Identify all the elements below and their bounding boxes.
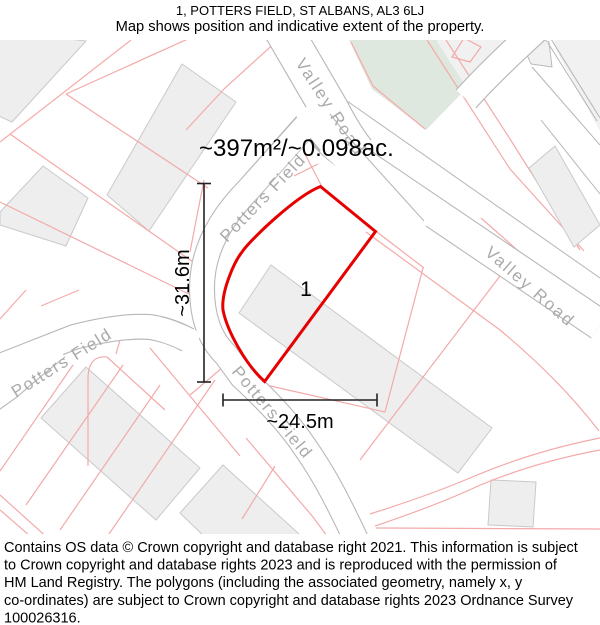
svg-text:~397m²/~0.098ac.: ~397m²/~0.098ac. (199, 135, 394, 162)
svg-text:HM Land Registry. The polygons: HM Land Registry. The polygons (includin… (4, 575, 523, 591)
svg-text:1: 1 (300, 278, 312, 301)
svg-text:100026316.: 100026316. (4, 610, 81, 625)
svg-text:Contains OS data © Crown copyr: Contains OS data © Crown copyright and d… (4, 540, 578, 556)
svg-text:~31.6m: ~31.6m (172, 249, 194, 316)
svg-text:to Crown copyright and databas: to Crown copyright and database rights 2… (4, 558, 558, 574)
svg-text:~24.5m: ~24.5m (266, 411, 333, 433)
svg-text:Map shows position and indicat: Map shows position and indicative extent… (116, 19, 485, 35)
svg-text:1, POTTERS FIELD, ST ALBANS, A: 1, POTTERS FIELD, ST ALBANS, AL3 6LJ (176, 3, 424, 18)
svg-text:co-ordinates) are subject to C: co-ordinates) are subject to Crown copyr… (4, 593, 574, 609)
